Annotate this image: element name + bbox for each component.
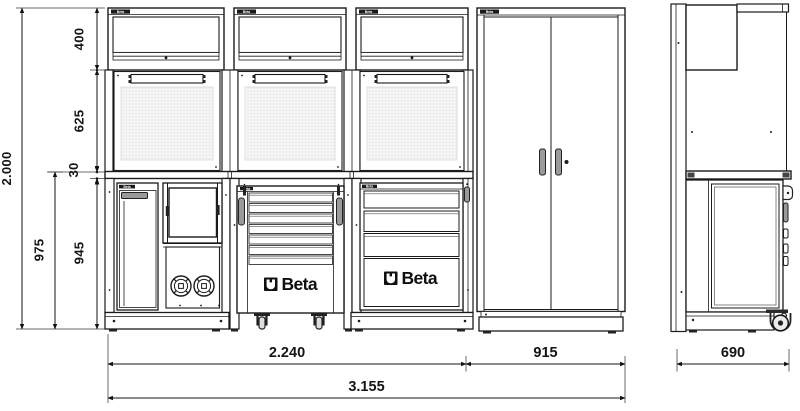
- roller-cabinet: Beta Beta: [237, 184, 344, 329]
- svg-text:2.000: 2.000: [0, 151, 14, 185]
- flip-door: [361, 17, 463, 53]
- plinth-bay-3: [351, 313, 473, 332]
- side-handle: [337, 198, 343, 225]
- worktop-side: [686, 171, 791, 179]
- lid-hinge-icon: [216, 205, 220, 215]
- top-rail-side: [737, 4, 789, 12]
- wall-cabinet-1: Beta: [108, 8, 224, 70]
- tool-holder-rail: [129, 75, 206, 84]
- svg-text:Beta: Beta: [365, 10, 372, 14]
- pegboard-bay-2: [238, 72, 342, 171]
- side-handle: [784, 203, 789, 222]
- svg-text:3.155: 3.155: [348, 379, 384, 395]
- beta-label: Beta: [111, 10, 130, 14]
- plinth-side: [686, 312, 774, 333]
- drawer-stack: [249, 193, 333, 265]
- caster-wheel-icon: [311, 313, 327, 329]
- dim-worktop-level: 975: [32, 172, 56, 329]
- svg-text:400: 400: [72, 28, 87, 51]
- tool-holder-rail: [375, 75, 450, 84]
- lock-icon: [565, 160, 569, 164]
- worktop: [105, 172, 473, 179]
- side-handle: [239, 198, 245, 225]
- door-handle: [122, 193, 148, 199]
- lock-icon: [289, 56, 292, 59]
- plinth: [479, 317, 623, 331]
- svg-text:30: 30: [66, 162, 81, 177]
- dim-tall-cabinet-width: 915: [466, 345, 625, 364]
- door-handle: [556, 149, 562, 175]
- dim-total-width: 3.155: [108, 379, 625, 398]
- beta-logo-icon: [264, 278, 278, 292]
- dim-wall-units: 400: [72, 8, 98, 70]
- beta-label: Beta: [359, 10, 378, 14]
- pegboard-surface: [121, 87, 213, 160]
- wall-cabinet-2: Beta: [234, 8, 346, 70]
- dim-total-height: 2.000: [0, 8, 22, 329]
- tool-holder-rail: [253, 75, 328, 84]
- bin-lid: [169, 188, 217, 237]
- dim-back-panel: 625: [72, 70, 98, 172]
- narrow-door-cabinet: Beta: [117, 183, 158, 310]
- svg-text:2.240: 2.240: [269, 345, 305, 361]
- svg-text:625: 625: [72, 110, 87, 133]
- pegboard-surface: [245, 87, 335, 160]
- svg-text:690: 690: [721, 345, 745, 361]
- tall-cabinet: Beta: [477, 8, 625, 334]
- drawer: [364, 234, 459, 257]
- wall-cabinet-side: [686, 5, 737, 70]
- svg-text:Beta: Beta: [117, 10, 124, 14]
- svg-text:915: 915: [533, 345, 557, 361]
- svg-text:975: 975: [32, 239, 47, 262]
- drawer-cabinet: Beta Beta: [360, 183, 470, 310]
- service-unit: [163, 183, 222, 308]
- pegboard-bay-3: [360, 72, 464, 171]
- beta-label: Beta: [240, 187, 253, 191]
- flip-door: [113, 17, 219, 53]
- svg-text:Beta: Beta: [123, 185, 130, 189]
- lock-icon: [411, 56, 414, 59]
- back-frame: [671, 4, 686, 332]
- beta-label: Beta: [362, 185, 377, 189]
- lock-icon: [165, 56, 168, 59]
- svg-text:945: 945: [72, 242, 87, 265]
- caster-wheel-icon: [254, 313, 270, 329]
- front-view: Beta Beta Beta: [105, 8, 625, 334]
- drawer-handle-profile: [784, 229, 789, 238]
- dim-under-worktop: 945: [72, 179, 98, 330]
- svg-text:Beta: Beta: [282, 274, 318, 294]
- drawer-handle-profile: [784, 257, 789, 266]
- svg-text:Beta: Beta: [366, 185, 373, 189]
- svg-text:Beta: Beta: [486, 10, 493, 14]
- front-handle: [465, 187, 470, 202]
- beta-label: Beta: [119, 185, 135, 189]
- beta-label: Beta: [237, 10, 256, 14]
- roller-cabinet-side: [686, 180, 793, 312]
- svg-text:Beta: Beta: [402, 268, 438, 288]
- side-view: [671, 4, 793, 333]
- flip-door: [239, 17, 341, 53]
- dim-depth: 690: [677, 345, 789, 364]
- svg-text:Beta: Beta: [243, 10, 250, 14]
- beta-label: Beta: [480, 10, 499, 14]
- lid-hinge-icon: [166, 206, 170, 216]
- dim-bench-width: 2.240: [108, 345, 466, 364]
- wall-cabinet-3: Beta: [356, 8, 468, 70]
- beta-logo-icon: [384, 272, 398, 286]
- plinth-bay-1: [105, 313, 229, 332]
- drawer-handle-profile: [784, 244, 789, 253]
- technical-drawing: Beta Beta Beta: [0, 0, 800, 411]
- pegboard-surface: [367, 87, 457, 160]
- door-handle: [540, 149, 546, 175]
- pegboard-bay-1: [114, 72, 220, 171]
